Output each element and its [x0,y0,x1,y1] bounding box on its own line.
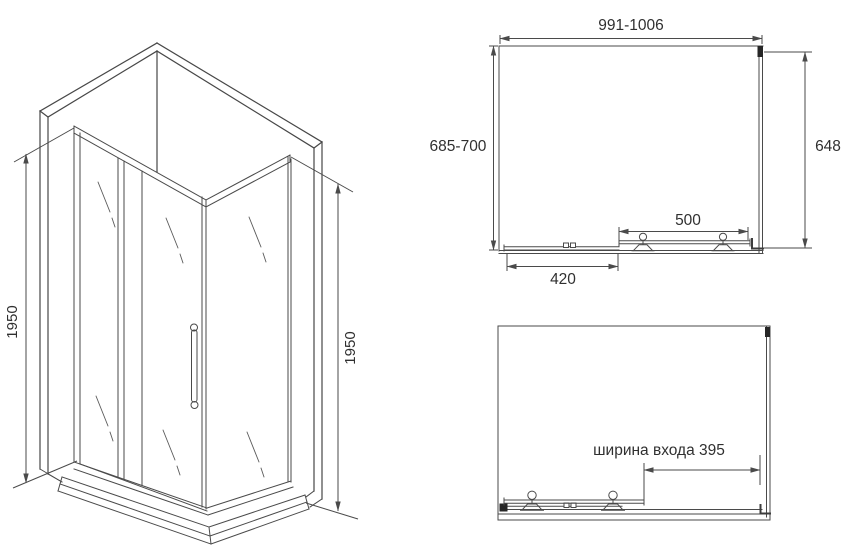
open-sliding-door [504,491,770,513]
roller-icon [632,233,654,251]
height-dimension-right: 1950 [291,157,359,519]
top-view-outline [499,46,763,254]
fixed-panel-dimension: 420 [507,254,618,288]
depth-dimension-left-label: 685-700 [430,138,487,155]
open-view-outline [498,326,770,520]
fixed-panel-dimension-label: 420 [550,271,576,288]
depth-dimension-left: 685-700 [430,46,498,250]
depth-dimension-right-label: 648 [815,138,841,155]
front-door-panel [74,126,207,511]
roller-icon [712,233,734,251]
wall-profile-bar [765,327,770,337]
walls [40,43,322,507]
drawing-svg: 1950 1950 [0,0,844,558]
door-stopper [752,239,763,249]
glass-clamp-icon [564,243,569,248]
shower-enclosure-technical-drawing: 1950 1950 [0,0,844,558]
width-dimension: 991-1006 [500,17,762,44]
height-dimension-right-label: 1950 [342,331,359,364]
glass-clamp-icon [571,243,576,248]
top-view: 991-1006 685-700 648 500 420 [430,17,841,288]
door-handle [191,324,199,409]
isometric-view: 1950 1950 [4,43,359,544]
roller-icon [602,491,625,510]
roller-icon [521,491,544,510]
depth-dimension-right: 648 [764,52,841,248]
width-dimension-label: 991-1006 [598,17,664,34]
entrance-width-dimension: ширина входа 395 [593,442,760,499]
fixed-panel-track [504,243,619,251]
wall-profile-bar [758,46,764,57]
glass-shine-marks [96,182,266,477]
shower-tray [58,469,309,544]
door-width-dimension-label: 500 [675,212,701,229]
open-door-view: ширина входа 395 [498,326,770,520]
sliding-door-track [619,233,763,251]
side-glass-panel [206,155,293,515]
height-dimension-left-label: 1950 [4,305,21,338]
entrance-width-label: ширина входа 395 [593,442,725,459]
